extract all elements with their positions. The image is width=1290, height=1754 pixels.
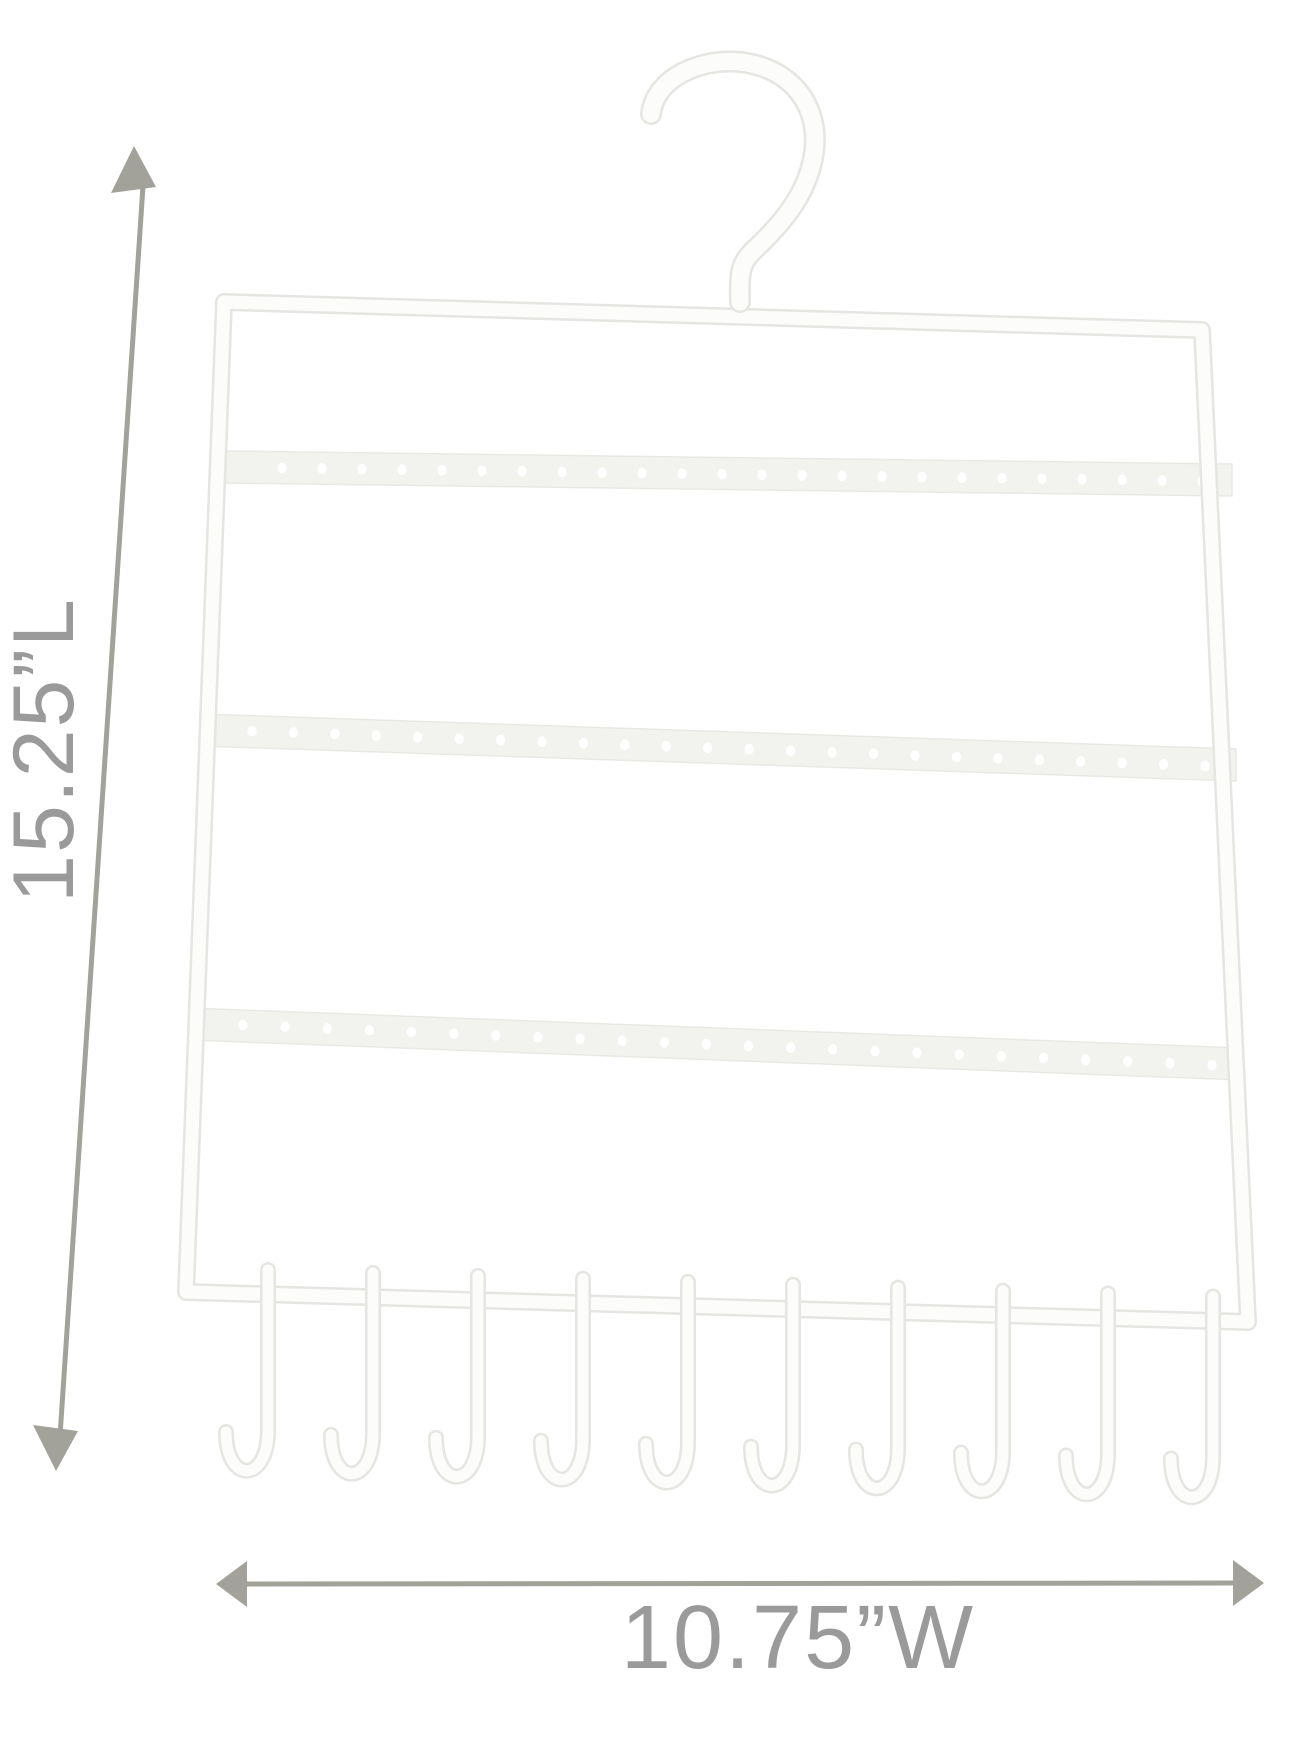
jewelry-hanger-illustration: 15.25”L 10.75”W [0,0,1290,1754]
product-image: 15.25”L 10.75”W [0,0,1290,1754]
top-hanger-hook [651,61,815,302]
earring-hole-bars [191,451,1240,1080]
height-dimension-label: 15.25”L [0,597,92,903]
width-dimension-label: 10.75”W [621,1588,975,1688]
